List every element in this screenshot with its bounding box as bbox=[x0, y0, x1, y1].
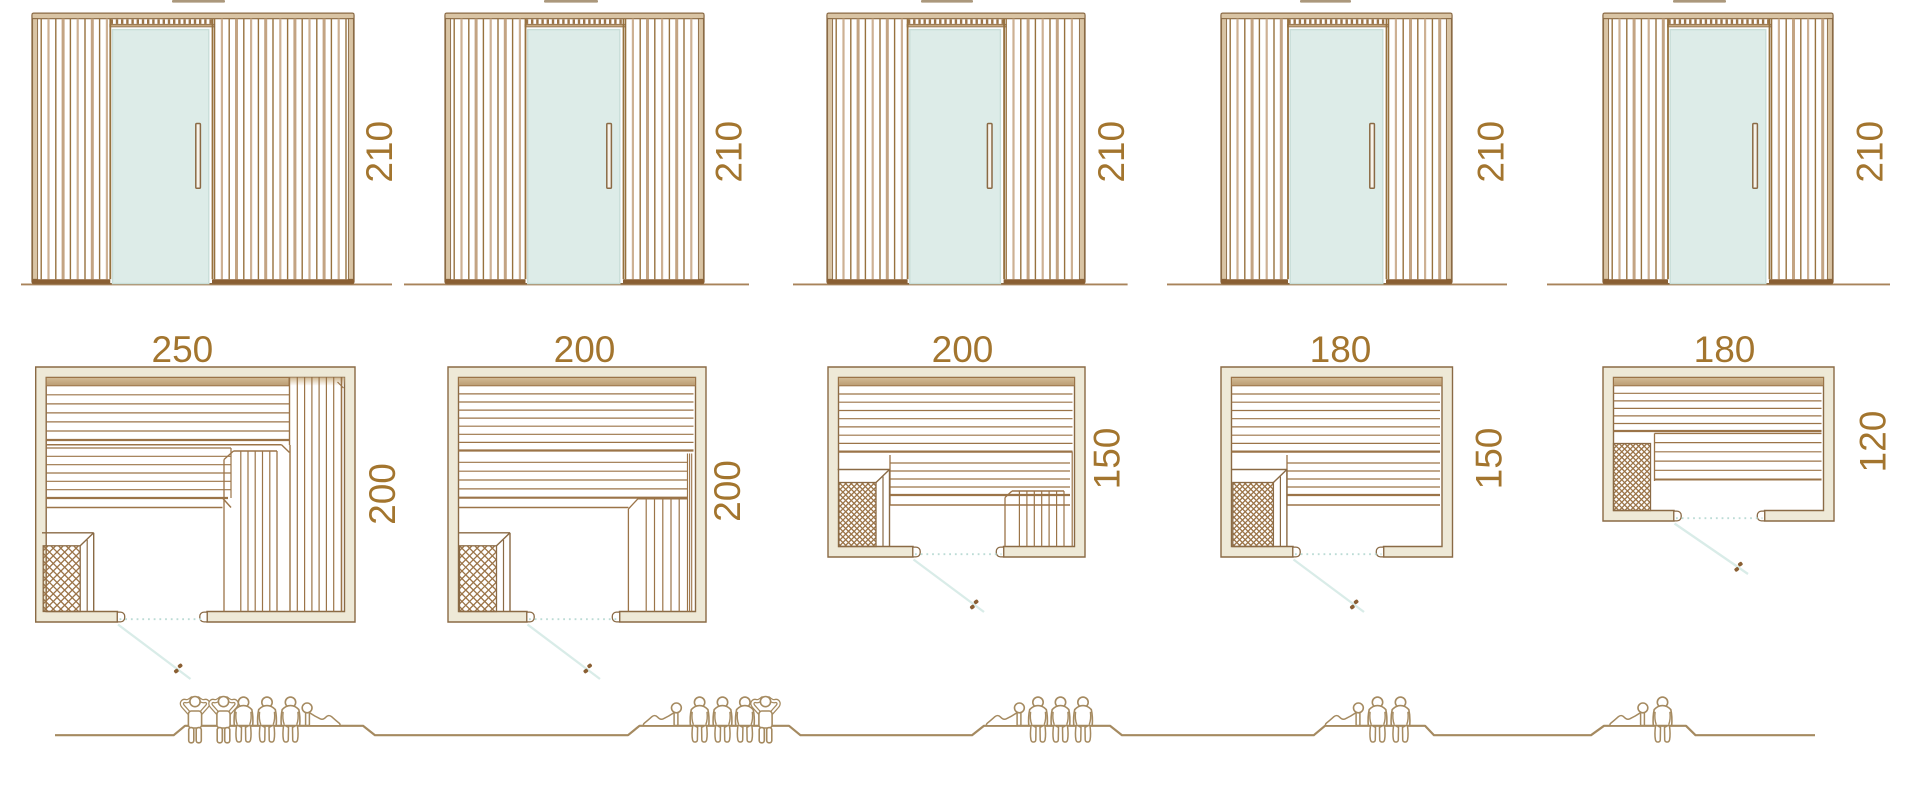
svg-text:210: 210 bbox=[1471, 121, 1512, 183]
svg-text:200: 200 bbox=[362, 463, 403, 525]
svg-text:210: 210 bbox=[1850, 121, 1891, 183]
svg-text:250: 250 bbox=[152, 329, 214, 370]
svg-text:150: 150 bbox=[1087, 428, 1128, 490]
svg-text:150: 150 bbox=[1469, 428, 1510, 490]
svg-text:180: 180 bbox=[1694, 329, 1756, 370]
svg-text:200: 200 bbox=[707, 460, 748, 522]
svg-text:200: 200 bbox=[932, 329, 994, 370]
svg-text:120: 120 bbox=[1853, 411, 1894, 473]
svg-text:180: 180 bbox=[1310, 329, 1372, 370]
svg-text:200: 200 bbox=[554, 329, 616, 370]
svg-text:210: 210 bbox=[709, 121, 750, 183]
svg-text:210: 210 bbox=[1091, 121, 1132, 183]
svg-text:210: 210 bbox=[359, 121, 400, 183]
